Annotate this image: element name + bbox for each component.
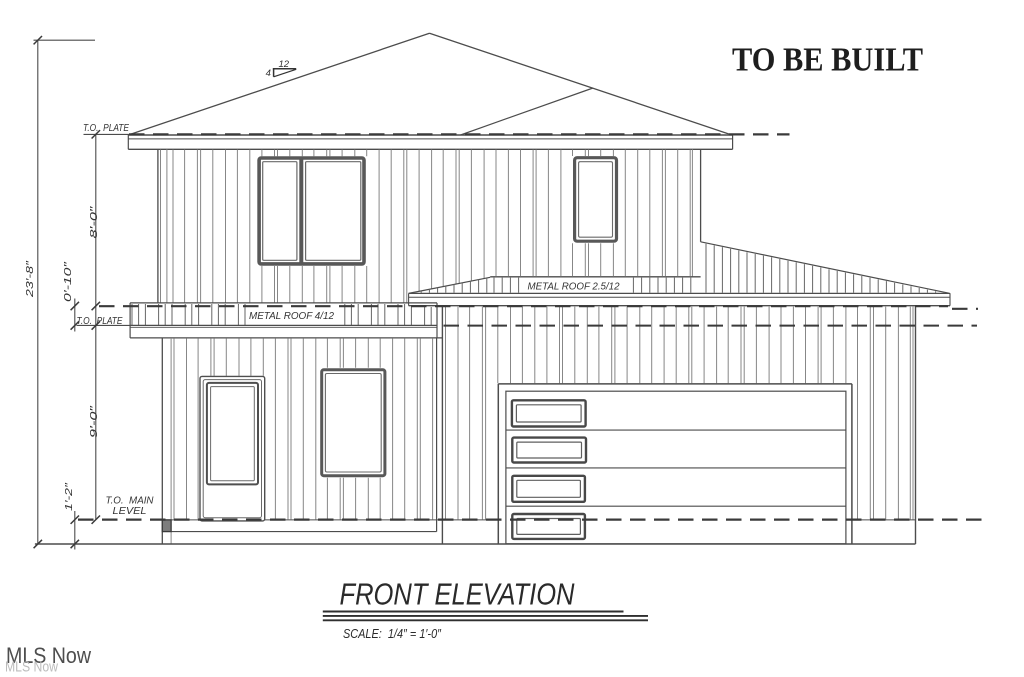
- svg-text:9′-0″: 9′-0″: [89, 405, 100, 438]
- svg-text:T.O. PLATE: T.O. PLATE: [83, 123, 129, 134]
- svg-text:0′-10″: 0′-10″: [63, 261, 74, 302]
- svg-text:T.O. MAIN: T.O. MAIN: [106, 496, 155, 507]
- svg-text:METAL ROOF 2.5/12: METAL ROOF 2.5/12: [528, 282, 620, 293]
- svg-text:FRONT ELEVATION: FRONT ELEVATION: [340, 577, 576, 612]
- svg-text:TO BE BUILT: TO BE BUILT: [732, 42, 923, 79]
- svg-text:T.O. PLATE: T.O. PLATE: [77, 316, 123, 327]
- svg-text:1′-2″: 1′-2″: [64, 482, 75, 511]
- svg-text:LEVEL: LEVEL: [113, 506, 147, 517]
- svg-text:MLS Now: MLS Now: [5, 660, 58, 673]
- svg-text:23′-8″: 23′-8″: [25, 260, 36, 298]
- svg-text:8′-0″: 8′-0″: [89, 206, 100, 239]
- svg-text:SCALE: 1/4″ = 1′-0″: SCALE: 1/4″ = 1′-0″: [343, 627, 441, 641]
- svg-text:METAL ROOF 4/12: METAL ROOF 4/12: [249, 311, 334, 322]
- svg-text:4: 4: [266, 68, 271, 79]
